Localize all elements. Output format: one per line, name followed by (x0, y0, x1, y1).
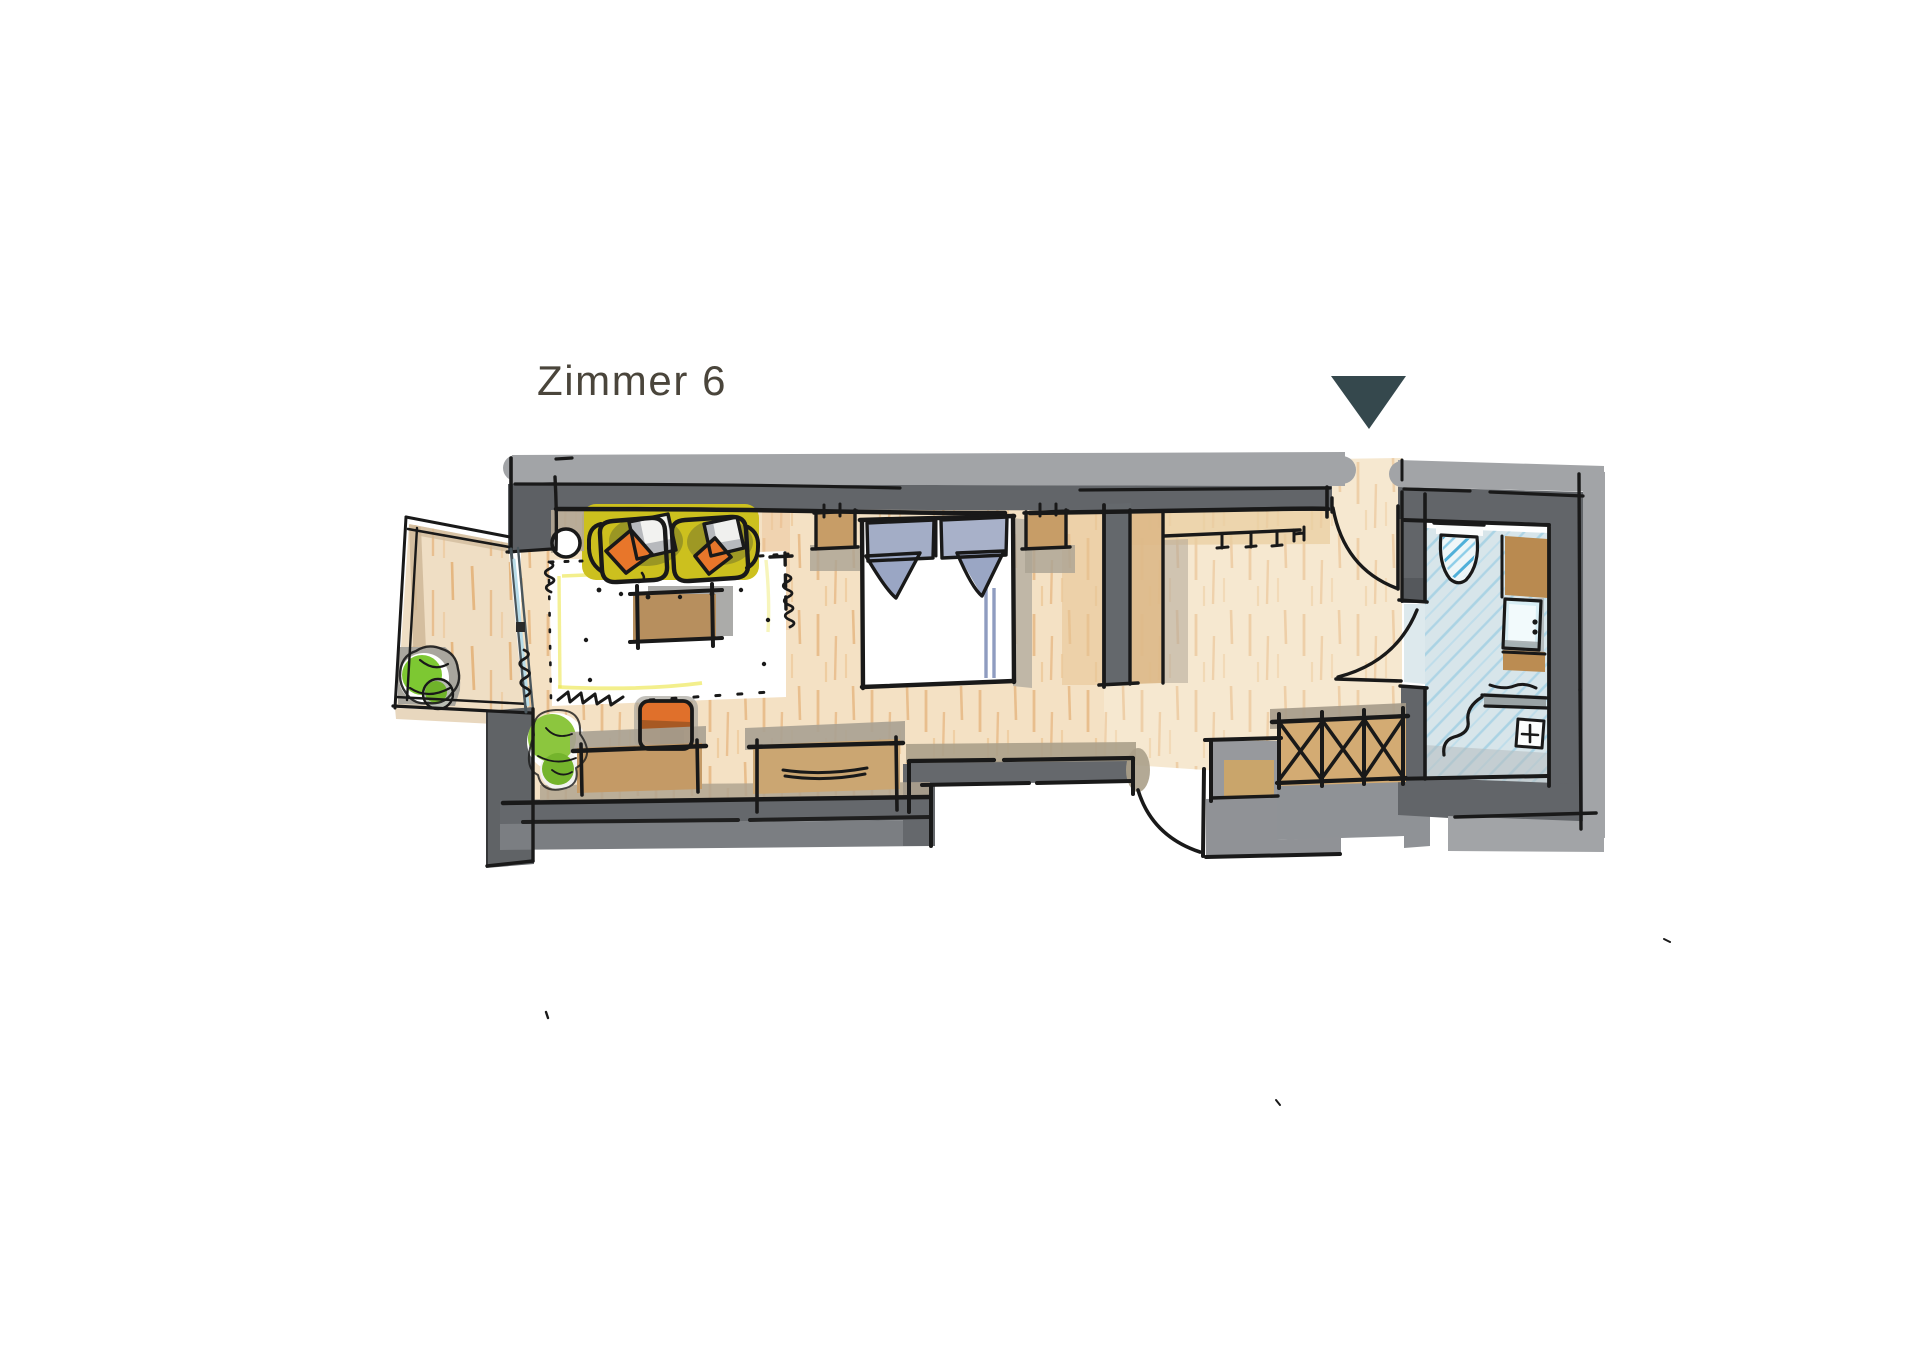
svg-text:Zimmer 6: Zimmer 6 (537, 357, 727, 404)
